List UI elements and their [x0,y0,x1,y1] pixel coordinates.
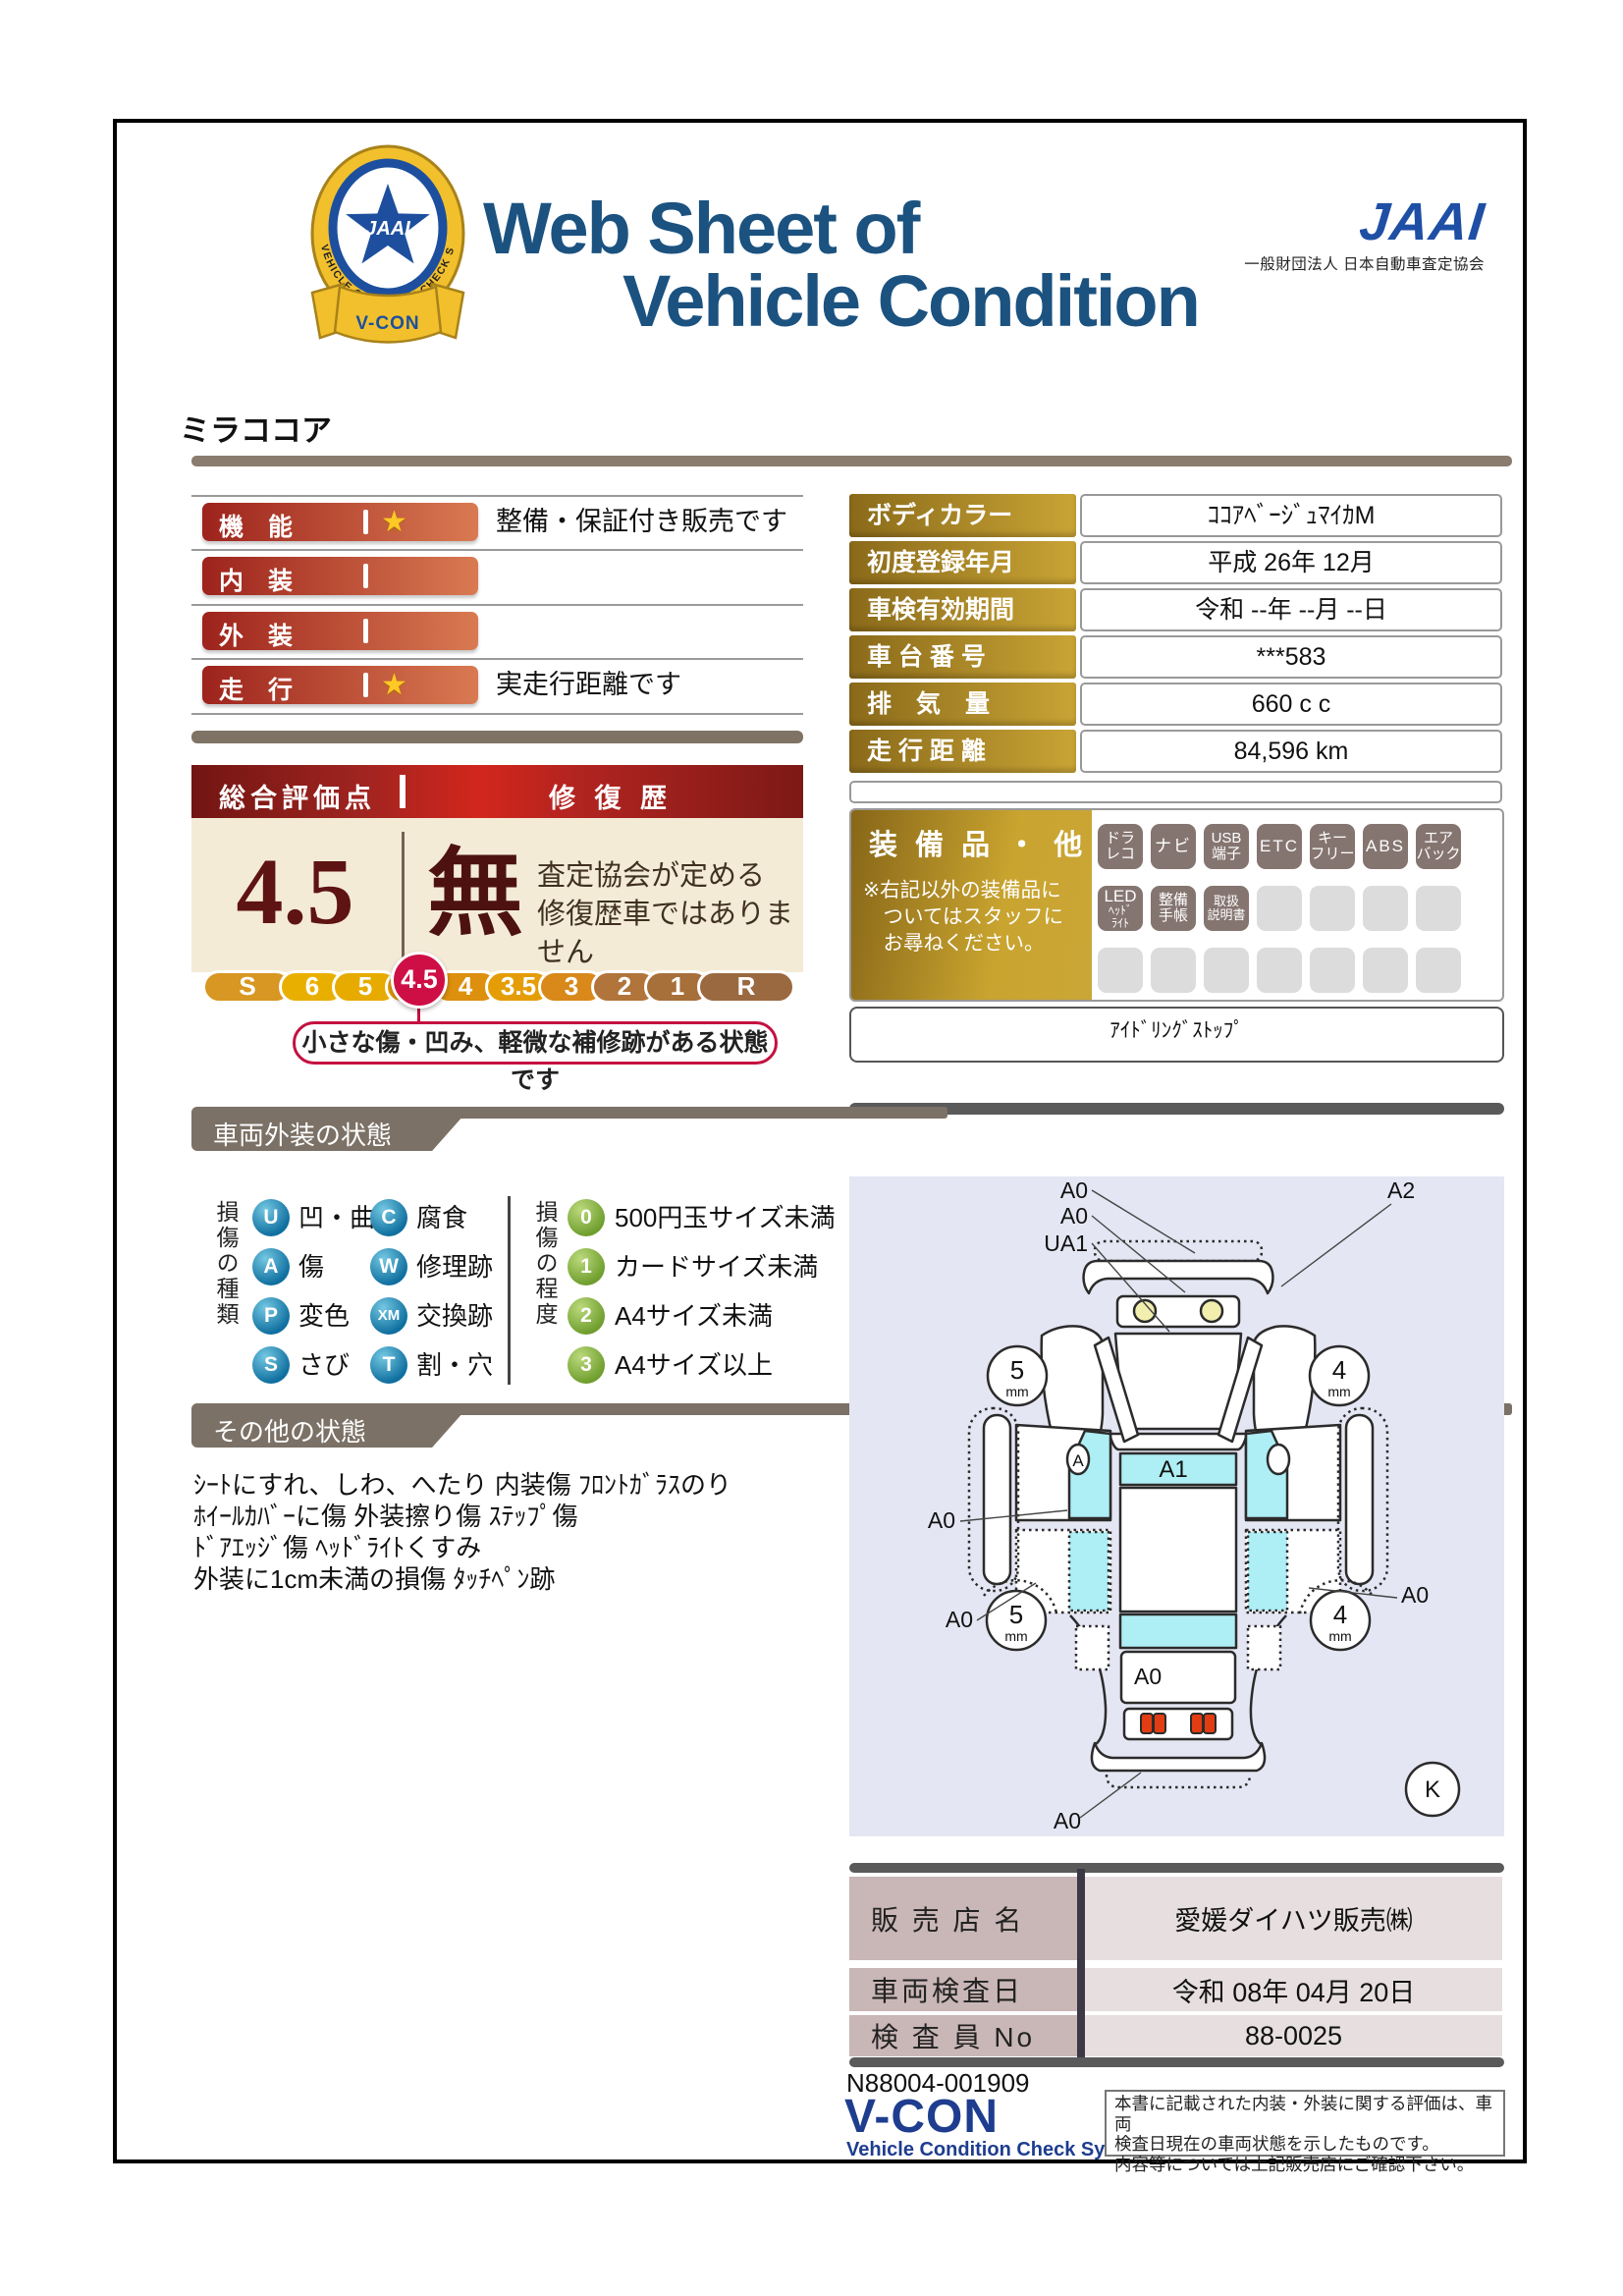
other-line: ﾎｲｰﾙｶﾊﾞｰに傷 外装擦り傷 ｽﾃｯﾌﾟ傷 [193,1501,731,1532]
damage-type-C: C [370,1199,407,1236]
equipment-badge-navi: ナビ [1151,824,1196,869]
equipment-title: 装 備 品 ・ 他 [869,822,1087,863]
equipment-note-line1: ※右記以外の装備品に [863,877,1063,903]
equipment-badge-keyfree: キーフリー [1310,824,1355,869]
info-label-mileage: 走 行 距 離 [849,730,1076,773]
info-label-bodycolor: ボディカラー [849,494,1076,537]
equipment-badge-etc: ETC [1257,824,1302,869]
rating-label: 外 装 [219,617,293,652]
equipment-badge-empty [1363,886,1408,931]
separator-line [191,658,803,660]
tread-unit: mm [1004,1628,1027,1644]
grade-scale: S 6 5 4 3.5 3 2 1 R [202,970,803,1004]
info-value-bodycolor: ｺｺｱﾍﾞｰｼﾞｭﾏｲｶM [1080,494,1502,537]
divider-bar [849,1863,1504,1873]
overall-body: 4.5 無 査定協会が定める 修復歴車ではありません [191,818,803,972]
repair-flag: 無 [427,840,523,950]
disclaimer-box: 本書に記載された内装・外装に関する評価は、車両 検査日現在の車両状態を示したもの… [1105,2090,1505,2157]
equipment-badge-empty [1310,886,1355,931]
damage-mark-front-3: UA1 [1044,1230,1088,1256]
equipment-note: ※右記以外の装備品に ついてはスタッフに お尋ねください。 [863,877,1063,957]
equipment-badge-drive-recorder: ドラレコ [1098,824,1143,869]
equipment-badge-empty [1416,948,1461,993]
damage-type-label: 変色 [298,1297,350,1335]
legend-divider [508,1196,511,1385]
equipment-badge-empty [1363,948,1408,993]
tread-front-left-value: 5 [1010,1355,1024,1385]
info-label-inspection-period: 車検有効期間 [849,588,1076,631]
other-line: ﾄﾞｱｴｯｼﾞ傷 ﾍｯﾄﾞﾗｲﾄくすみ [193,1532,731,1563]
dealer-name-label: 販 売 店 名 [849,1877,1078,1960]
damage-degree-label: 500円玉サイズ未満 [615,1199,836,1236]
info-value-chassis-number: ***583 [1080,635,1502,679]
tread-rear-left-value: 5 [1009,1600,1023,1629]
equipment-badge-manual: 取扱説明書 [1204,886,1249,931]
damage-mark-side-right: A0 [1401,1582,1429,1608]
damage-mark-roof: A1 [1159,1456,1187,1483]
info-label-first-registration: 初度登録年月 [849,541,1076,584]
damage-type-label: 腐食 [416,1199,467,1236]
inspection-date-label: 車両検査日 [849,1968,1078,2011]
model-name: ミラココア [180,406,332,450]
inspection-date-value: 令和 08年 04月 20日 [1085,1968,1502,2011]
rating-label: 内 装 [219,562,293,597]
rating-row-interior: 内 装 [202,557,478,595]
other-condition-text: ｼｰﾄにすれ、しわ、へたり 内装傷 ﾌﾛﾝﾄｶﾞﾗｽのり ﾎｲｰﾙｶﾊﾞｰに傷 … [193,1469,731,1595]
damage-degree-label: カードサイズ未満 [615,1248,818,1285]
damage-degree-title: 損傷の程度 [528,1200,562,1387]
rating-tick [363,673,368,697]
vcon-badge-logo: VEHICLE CONDITION CHECK SYSTEM JAAI V-CO… [291,143,485,371]
scale-segment: R [697,970,795,1004]
rating-tick [363,510,368,534]
extra-equipment-box: ｱｲﾄﾞﾘﾝｸﾞｽﾄｯﾌﾟ [849,1007,1504,1063]
equipment-badge-usb: USB端子 [1204,824,1249,869]
equipment-badge-grid: ドラレコ ナビ USB端子 ETC キーフリー ABS エアバック LEDﾍｯﾄ… [1098,824,1461,993]
damage-degree-1: 1 [568,1248,605,1285]
disclaimer-line: 内容等については上記販売店にご確認下さい。 [1114,2155,1495,2175]
damage-degree-3: 3 [568,1346,605,1384]
tread-unit: mm [1327,1384,1350,1399]
equipment-badge-empty [1310,948,1355,993]
rating-row-function: 機 能 ★ [202,503,478,541]
rating-note: 整備・保証付き販売です [496,503,787,541]
damage-mark-trunk: A0 [1134,1664,1162,1689]
divider-bar [849,1103,1504,1115]
exterior-section-title: 車両外装の状態 [191,1107,471,1151]
inspector-no-value: 88-0025 [1085,2015,1502,2056]
info-value-mileage: 84,596 km [1080,730,1502,773]
divider-bar [849,2057,1504,2067]
repair-history-header: 修 復 歴 [449,777,773,815]
tread-unit: mm [1328,1628,1351,1644]
damage-type-label: 交換跡 [416,1297,493,1335]
repair-note-line2: 修復歴車ではありません [537,896,803,972]
damage-mark-door: A [1072,1451,1084,1470]
info-value-first-registration: 平成 26年 12月 [1080,541,1502,584]
separator-line [191,495,803,497]
rating-tick [363,619,368,643]
damage-type-T: T [370,1346,407,1384]
info-value-inspection-period: 令和 --年 --月 --日 [1080,588,1502,631]
vehicle-condition-sheet: VEHICLE CONDITION CHECK SYSTEM JAAI V-CO… [0,0,1623,2296]
info-label-displacement: 排 気 量 [849,683,1076,726]
damage-type-U: U [252,1199,290,1236]
damage-mark-front-right: A2 [1387,1177,1415,1203]
rating-label: 走 行 [219,671,293,706]
equipment-badge-abs: ABS [1363,824,1408,869]
damage-type-label: 修理跡 [416,1248,493,1285]
equipment-badge-empty [1416,886,1461,931]
disclaimer-line: 検査日現在の車両状態を示したものです。 [1114,2134,1495,2155]
rating-row-exterior: 外 装 [202,612,478,650]
equipment-note-line3: お尋ねください。 [863,930,1063,957]
inspector-no-label: 検 査 員 No [849,2015,1078,2056]
badge-emblem-text: JAAI [365,218,410,240]
dealer-name-value: 愛媛ダイハツ販売㈱ [1085,1877,1502,1960]
damage-degree-label: A4サイズ未満 [615,1297,773,1335]
damage-type-S: S [252,1346,290,1384]
badge-ribbon-text: V-CON [355,313,419,334]
separator-line [191,604,803,606]
damage-mark-side-left-lower: A0 [946,1607,973,1632]
divider-bar [191,731,803,743]
disclaimer-line: 本書に記載された内装・外装に関する評価は、車両 [1114,2094,1495,2134]
equipment-badge-empty [1257,948,1302,993]
equipment-badge-led-headlight: LEDﾍｯﾄﾞﾗｲﾄ [1098,886,1143,931]
overall-score-header: 総合評価点 [219,777,376,815]
equipment-badge-service-book: 整備手帳 [1151,886,1196,931]
other-section-title: その他の状態 [191,1403,471,1448]
equipment-note-line2: ついてはスタッフに [863,903,1063,930]
jaai-subtitle: 一般財団法人 日本自動車査定協会 [1119,252,1485,274]
overall-header: 総合評価点 修 復 歴 [191,765,803,818]
jaai-logo: JAAI [1357,194,1488,249]
damage-mark-front-1: A0 [1060,1177,1088,1203]
damage-type-label: 傷 [298,1248,324,1285]
other-line: 外装に1cm未満の損傷 ﾀｯﾁﾍﾟﾝ跡 [193,1563,731,1595]
rating-tick [363,564,368,588]
damage-degree-0: 0 [568,1199,605,1236]
selected-grade-badge: 4.5 [391,952,448,1009]
grade-caption: 小さな傷・凹み、軽微な補修跡がある状態です [293,1021,778,1065]
star-icon: ★ [381,505,407,539]
dealer-table-divider [1077,1869,1085,2059]
damage-type-label: 凹・曲 [298,1199,375,1236]
damage-mark-side-left: A0 [928,1507,955,1533]
divider-bar [191,456,1512,466]
other-line: ｼｰﾄにすれ、しわ、へたり 内装傷 ﾌﾛﾝﾄｶﾞﾗｽのり [193,1469,731,1501]
tread-front-right-value: 4 [1332,1355,1346,1385]
tread-unit: mm [1005,1384,1028,1399]
damage-type-P: P [252,1297,290,1335]
damage-mark-front-2: A0 [1060,1203,1088,1229]
page-title-line2: Vehicle Condition [622,259,1199,343]
separator-line [191,549,803,551]
car-damage-diagram: A0 A0 UA1 A2 A1 A 5 mm 4 mm 5 mm 4 mm A0… [849,1176,1504,1836]
damage-type-title: 損傷の種類 [209,1200,243,1387]
rating-label: 機 能 [219,508,293,543]
equipment-badge-empty [1151,948,1196,993]
damage-mark-rear-bumper: A0 [1054,1808,1081,1833]
separator-line [191,713,803,715]
damage-type-A: A [252,1248,290,1285]
corner-mark: K [1425,1777,1440,1803]
damage-type-label: さび [298,1346,350,1384]
jaai-logo-block: JAAI 一般財団法人 日本自動車査定協会 [1119,194,1485,274]
star-icon: ★ [381,668,407,702]
info-empty-row [849,781,1502,803]
equipment-title-panel: 装 備 品 ・ 他 ※右記以外の装備品に ついてはスタッフに お尋ねください。 [851,810,1092,1000]
vcon-logo: V-CON [844,2090,999,2144]
damage-type-W: W [370,1248,407,1285]
info-label-chassis-number: 車 台 番 号 [849,635,1076,679]
page-title-line1: Web Sheet of [483,187,918,270]
equipment-badge-airbag: エアバック [1416,824,1461,869]
info-value-displacement: 660 c c [1080,683,1502,726]
equipment-badge-empty [1098,948,1143,993]
overall-score: 4.5 [191,818,399,972]
damage-type-label: 割・穴 [416,1346,493,1384]
tread-rear-right-value: 4 [1333,1600,1347,1629]
rating-row-mileage: 走 行 ★ [202,666,478,704]
repair-note: 査定協会が定める 修復歴車ではありません [537,857,803,972]
damage-degree-label: A4サイズ以上 [615,1346,773,1384]
overall-header-tick [400,775,406,808]
damage-type-XM: XM [370,1297,407,1335]
equipment-section: 装 備 品 ・ 他 ※右記以外の装備品に ついてはスタッフに お尋ねください。 … [849,808,1504,1002]
overall-divider [402,832,405,958]
rating-note: 実走行距離です [496,666,681,704]
car-diagram-svg: A0 A0 UA1 A2 A1 A 5 mm 4 mm 5 mm 4 mm A0… [849,1176,1504,1836]
equipment-badge-empty [1204,948,1249,993]
repair-note-line1: 査定協会が定める [537,857,803,896]
equipment-badge-empty [1257,886,1302,931]
damage-degree-2: 2 [568,1297,605,1335]
